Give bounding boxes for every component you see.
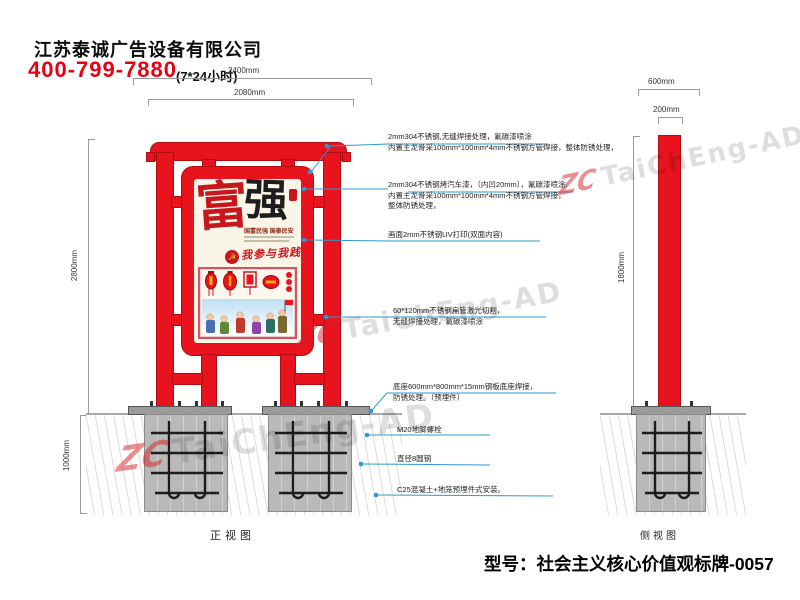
dimension-2080 [148,99,354,106]
anchor-bolt-icon [150,401,153,406]
outer-frame-right-post [323,152,341,408]
anchor-bolt-icon [690,401,693,406]
side-view-label: 侧视图 [640,527,679,542]
outer-frame-corner-tab [146,152,155,162]
annotation-flat-tube: 60*120mm不锈钢扁管激光切割， 无缝焊接处理，氟碳漆喷涂 [393,306,504,327]
bottom-crossbar [172,373,203,385]
anchor-bolt-icon [317,401,320,406]
dimension-200 [658,117,683,124]
dimension-1800 [633,136,640,414]
rebar-cage-icon [145,415,229,513]
ground-hatch-front [86,413,402,515]
outer-frame-corner-tab [342,152,351,162]
anchor-bolt-icon [221,401,224,406]
concrete-foundation [144,414,228,512]
front-and-side-views: 2400mm 2080mm 2800mm 1000mm 富 强 国富 [0,0,800,600]
outer-frame-top-bar [150,142,347,161]
rebar-cage-icon [269,415,353,513]
dimension-2400 [133,78,372,85]
anchor-bolt-icon [195,401,198,406]
lantern-crowd-graphic [200,269,295,337]
annotation-uv-print: 画面2mm不锈钢UV打印(双面内容) [388,230,503,241]
concrete-foundation [268,414,352,512]
anchor-bolt-icon [178,401,181,406]
annotation-panel-material: 2mm304不锈钢烤汽车漆，（内凹20mm），氟碳漆喷涂. 内置主龙骨采100m… [388,180,568,212]
anchor-bolt-icon [645,401,648,406]
dimension-600-label: 600mm [648,77,675,86]
annotation-concrete: C25混凝土+地笼预埋件式安装。 [397,485,505,496]
poster-calligraphy-fu: 富 [194,179,250,235]
model-number-line: 型号：社会主义核心价值观标牌-0057 [484,551,774,576]
front-view-label: 正视图 [210,527,255,543]
dimension-600 [638,89,700,96]
poster: 富 强 国富民强 国泰民安 ☭ 我参与我践行 [194,179,301,343]
lantern-illustration [198,267,297,339]
panel-leg [201,354,217,408]
bottom-crossbar [294,373,325,385]
anchor-bolt-icon [274,401,277,406]
annotation-base-plate: 底座600mm*800mm*15mm钢板底座焊接， 防锈处理。（预埋件） [393,382,537,403]
concrete-foundation [636,414,706,512]
dimension-2080-label: 2080mm [234,88,265,97]
fine-print-line [244,236,294,238]
dimension-1000-label: 1000mm [62,440,71,471]
dimension-2800-label: 2800mm [70,250,79,281]
poster-slogan: 国富民强 国泰民安 [244,226,294,235]
outer-frame-left-post [156,152,174,408]
drawing-sheet: 江苏泰诚广告设备有限公司 400-799-7880 (7*24小时) ZCTai… [0,0,800,600]
annotation-round-steel: 直径8圆钢 [397,454,431,465]
anchor-bolt-icon [345,401,348,406]
poster-motto: 我参与我践行 [241,243,301,263]
rebar-cage-icon [637,415,707,513]
dimension-200-label: 200mm [653,105,680,114]
dimension-1800-label: 1800mm [617,252,626,283]
fine-print-line [244,240,289,242]
dimension-2400-label: 2400mm [228,66,259,75]
poster-calligraphy-qiang: 强 [243,179,289,224]
anchor-bolt-icon [300,401,303,406]
side-view-column [658,135,681,407]
dimension-2800 [88,139,95,415]
party-emblem-icon: ☭ [225,250,239,264]
annotation-frame-material: 2mm304不锈钢,无缝焊接处理，氟碳漆喷涂 内置主龙骨采100mm*100mm… [388,132,618,153]
red-seal-icon [289,189,297,201]
annotation-anchor-bolt: M20地脚螺栓 [397,425,442,436]
